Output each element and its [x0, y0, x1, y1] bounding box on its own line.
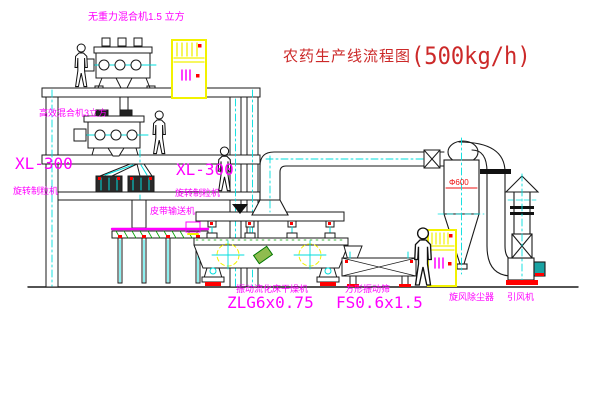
title-text: 农药生产线流程图: [283, 49, 411, 64]
damper-valve: [424, 150, 444, 168]
cyclone-diameter-label: Φ600: [449, 179, 469, 187]
page-title: 农药生产线流程图 (500kg/h): [283, 44, 541, 68]
granulator-mid-name: 旋转制粒机: [175, 189, 220, 199]
control-cabinet-1: [172, 40, 206, 98]
high-efficiency-mixer-label: 高效混合机3立方: [39, 109, 107, 119]
fluid-bed-dryer-model: ZLG6x0.75: [227, 295, 314, 311]
granulator-left-model: XL-300: [15, 156, 73, 172]
granulator-mid-model: XL-300: [176, 162, 234, 178]
belt-conveyor-drawing: [112, 229, 208, 283]
exhaust-duct: [252, 152, 430, 215]
y-chute: [100, 164, 152, 176]
induced-draft-fan-drawing: [487, 174, 545, 285]
worker-figure-1: [75, 44, 87, 87]
cyclone-collector-label: 旋风除尘器: [449, 293, 494, 303]
gravity-free-mixer-drawing: [82, 38, 156, 118]
title-capacity: (500kg/h): [411, 44, 531, 68]
granulators-drawing: [96, 176, 154, 228]
flow-diagram: 无重力混合机1.5 立方 农药生产线流程图 (500kg/h) 高效混合机3立方…: [0, 0, 600, 403]
belt-conveyor-label: 皮带输送机: [150, 207, 195, 217]
granulator-left-name: 旋转制粒机: [13, 187, 58, 197]
gravity-free-mixer-label: 无重力混合机1.5 立方: [88, 12, 185, 23]
fluid-bed-dryer-drawing: [186, 204, 362, 286]
induced-draft-fan-label: 引风机: [507, 293, 534, 303]
worker-figure-2: [153, 111, 165, 154]
control-cabinet-2: [428, 230, 456, 286]
square-sieve-model: FS0.6x1.5: [336, 295, 423, 311]
